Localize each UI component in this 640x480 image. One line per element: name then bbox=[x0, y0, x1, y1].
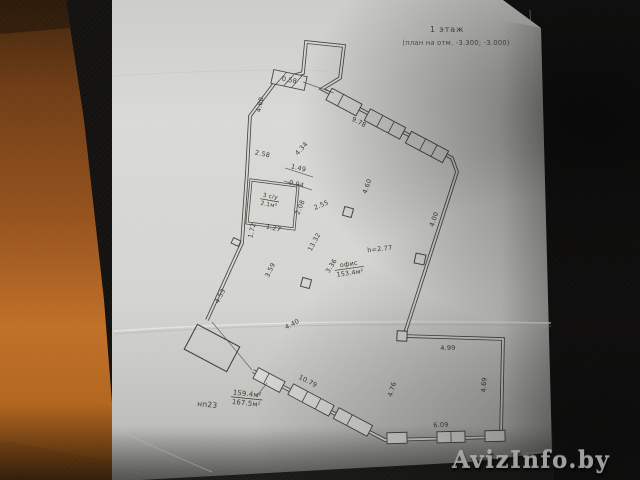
plan-title: 1 этаж bbox=[430, 24, 464, 34]
floor-plan-photo: 4.602.581.490.942.081.271.724.533.594.34… bbox=[0, 0, 640, 480]
plan-subtitle: (план на отм. -3.300; -3.000) bbox=[402, 39, 509, 47]
dimension-label: 6.09 bbox=[433, 421, 449, 430]
photo-scene: 4.602.581.490.942.081.271.724.533.594.34… bbox=[0, 0, 640, 480]
window-band-bottom bbox=[387, 430, 505, 444]
dimension-label: 4.69 bbox=[479, 377, 488, 393]
watermark: AvizInfo.by bbox=[452, 448, 640, 473]
dimension-label: 4.99 bbox=[440, 344, 456, 353]
unit-area-fraction: 159.4м²167.5м² bbox=[230, 388, 263, 409]
wood-surface bbox=[0, 0, 118, 480]
